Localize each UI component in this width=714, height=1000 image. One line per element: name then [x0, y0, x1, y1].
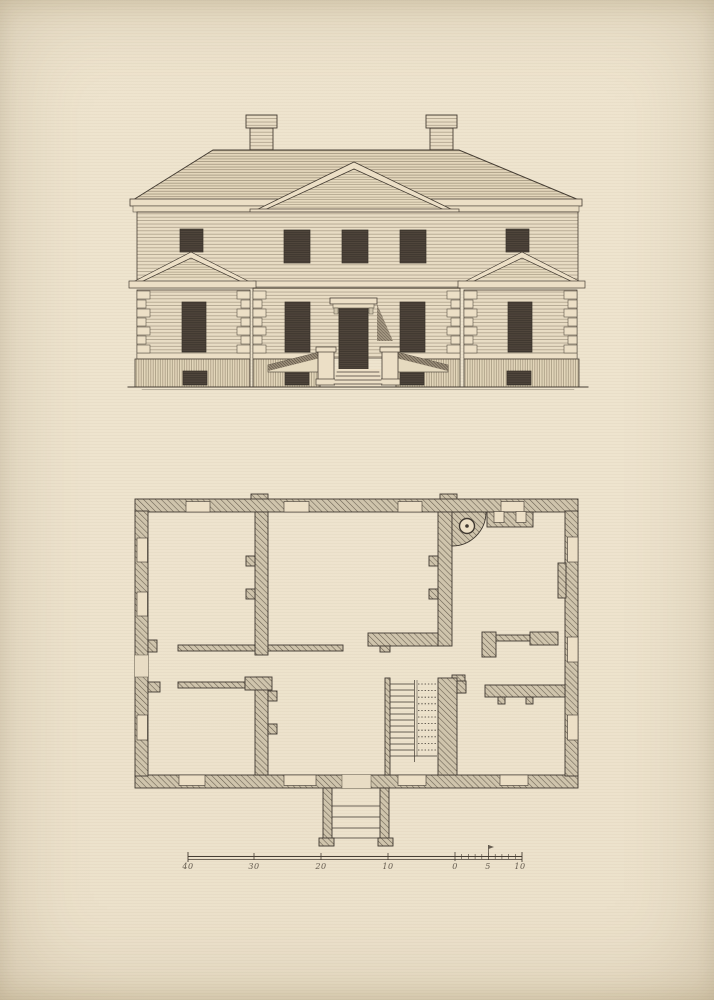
plan-door-openings	[135, 655, 372, 789]
basement-window-left	[285, 371, 309, 385]
corner-stove	[452, 512, 486, 546]
upper-window-2	[342, 230, 368, 263]
upper-window-3	[400, 230, 426, 263]
upper-window-right-end	[506, 229, 529, 252]
entrance-steps-plan	[319, 788, 393, 846]
front-door-opening	[342, 775, 371, 789]
scale-label-5: 5	[485, 862, 491, 871]
scale-label-40: 40	[181, 862, 193, 871]
right-wing-sill-band	[464, 353, 577, 359]
plan-interior-walls	[148, 512, 565, 775]
scale-label-10b: 10	[514, 862, 525, 871]
scale-label-0: 0	[452, 862, 458, 871]
door-hood-bracket-left	[334, 308, 338, 314]
plan-windows	[137, 502, 578, 786]
plan-right-wall-fireplace	[558, 563, 566, 598]
scale-bar: 40 30 20 10 0 5 10	[181, 845, 525, 871]
front-door	[339, 306, 368, 372]
staircase	[390, 680, 437, 762]
basement-window-right	[400, 371, 424, 385]
house-elevation	[128, 115, 588, 390]
upper-window-left-end	[180, 229, 203, 252]
staircase-upper-flight-dotted	[418, 684, 437, 750]
floor-plan	[135, 494, 579, 846]
scale-bar-labels: 40 30 20 10 0 5 10	[181, 862, 525, 871]
scale-label-10: 10	[382, 862, 393, 871]
scale-label-30: 30	[248, 862, 259, 871]
door-hood-bracket-right	[369, 308, 373, 314]
left-wing-window	[182, 302, 206, 352]
right-wing-window	[508, 302, 532, 352]
left-wing-basement-window	[183, 371, 207, 385]
architectural-plate-drawing: 40 30 20 10 0 5 10	[0, 0, 714, 1000]
belt-course	[253, 281, 460, 287]
ground-window-left	[285, 302, 310, 352]
ground-window-right	[400, 302, 425, 352]
side-door-opening	[135, 655, 149, 677]
right-wing-basement-window	[507, 371, 531, 385]
scale-label-20: 20	[314, 862, 326, 871]
engraving-plate: 40 30 20 10 0 5 10	[0, 0, 714, 1000]
ground-line	[128, 387, 588, 390]
left-wing-sill-band	[137, 353, 250, 359]
upper-window-1	[284, 230, 310, 263]
door-hood-cornice	[330, 298, 377, 304]
